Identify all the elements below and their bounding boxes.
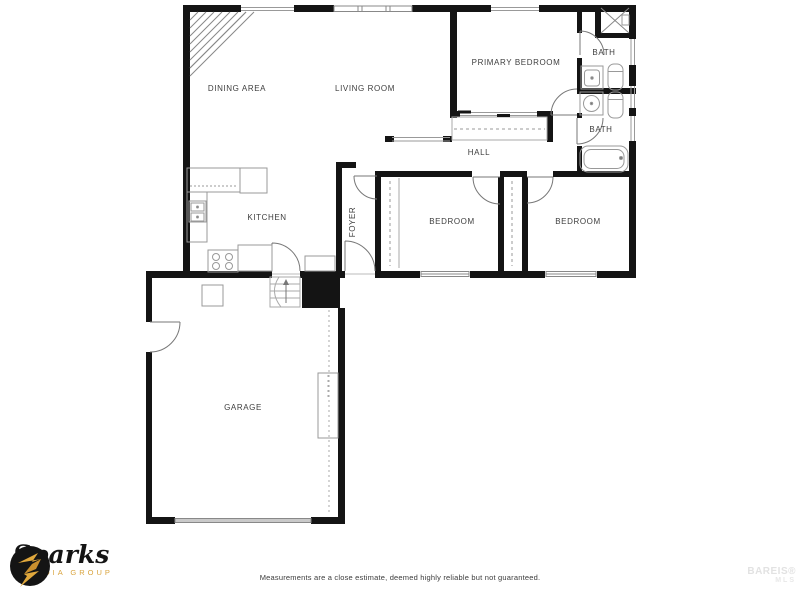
windows [240,6,635,277]
measurement-disclaimer: Measurements are a close estimate, deeme… [0,573,800,582]
toilet-lower [608,92,623,118]
workbench [318,373,338,438]
watermark-line1: BAREIS® [747,567,796,576]
primary-bedroom-door [551,89,577,115]
room-label-garage: GARAGE [224,403,262,412]
toilet-upper [608,64,623,90]
bedroom-right-door [527,177,553,203]
room-label-foyer: FOYER [348,207,357,238]
room-label-kitchen: KITCHEN [247,213,286,222]
foyer-hall-door [354,176,377,199]
bedroom-left-door [473,177,500,204]
watermark-line2: MLS [747,576,796,585]
floor-plan-drawing: DINING AREA LIVING ROOM PRIMARY BEDROOM … [0,0,800,595]
floor-plan-page: DINING AREA LIVING ROOM PRIMARY BEDROOM … [0,0,800,595]
room-label-primary-bedroom: PRIMARY BEDROOM [472,58,561,67]
sparks-media-group-logo: Sparks MEDIA GROUP [8,543,113,577]
room-label-bath-lower: BATH [589,125,612,134]
garage-fixtures [175,277,338,523]
garage-side-door [150,322,180,352]
kitchen-garage-door [272,243,300,271]
sliding-door-tabs [458,111,510,118]
front-door [345,241,375,271]
room-label-dining: DINING AREA [208,84,266,93]
mls-watermark: BAREIS® MLS [747,567,796,585]
pantry-cabinet [305,256,335,271]
room-label-living: LIVING ROOM [335,84,395,93]
chimney-column [302,277,340,308]
room-label-bedroom-right: BEDROOM [555,217,601,226]
stove [208,250,238,272]
garage-door [175,519,311,523]
room-label-bedroom-left: BEDROOM [429,217,475,226]
steps [270,277,300,307]
room-label-hall: HALL [468,148,490,157]
room-label-bath-upper: BATH [592,48,615,57]
logo-mark-icon [8,543,52,591]
fireplace-hatch [190,12,254,76]
water-heater [202,285,223,306]
window-caps [238,5,636,144]
